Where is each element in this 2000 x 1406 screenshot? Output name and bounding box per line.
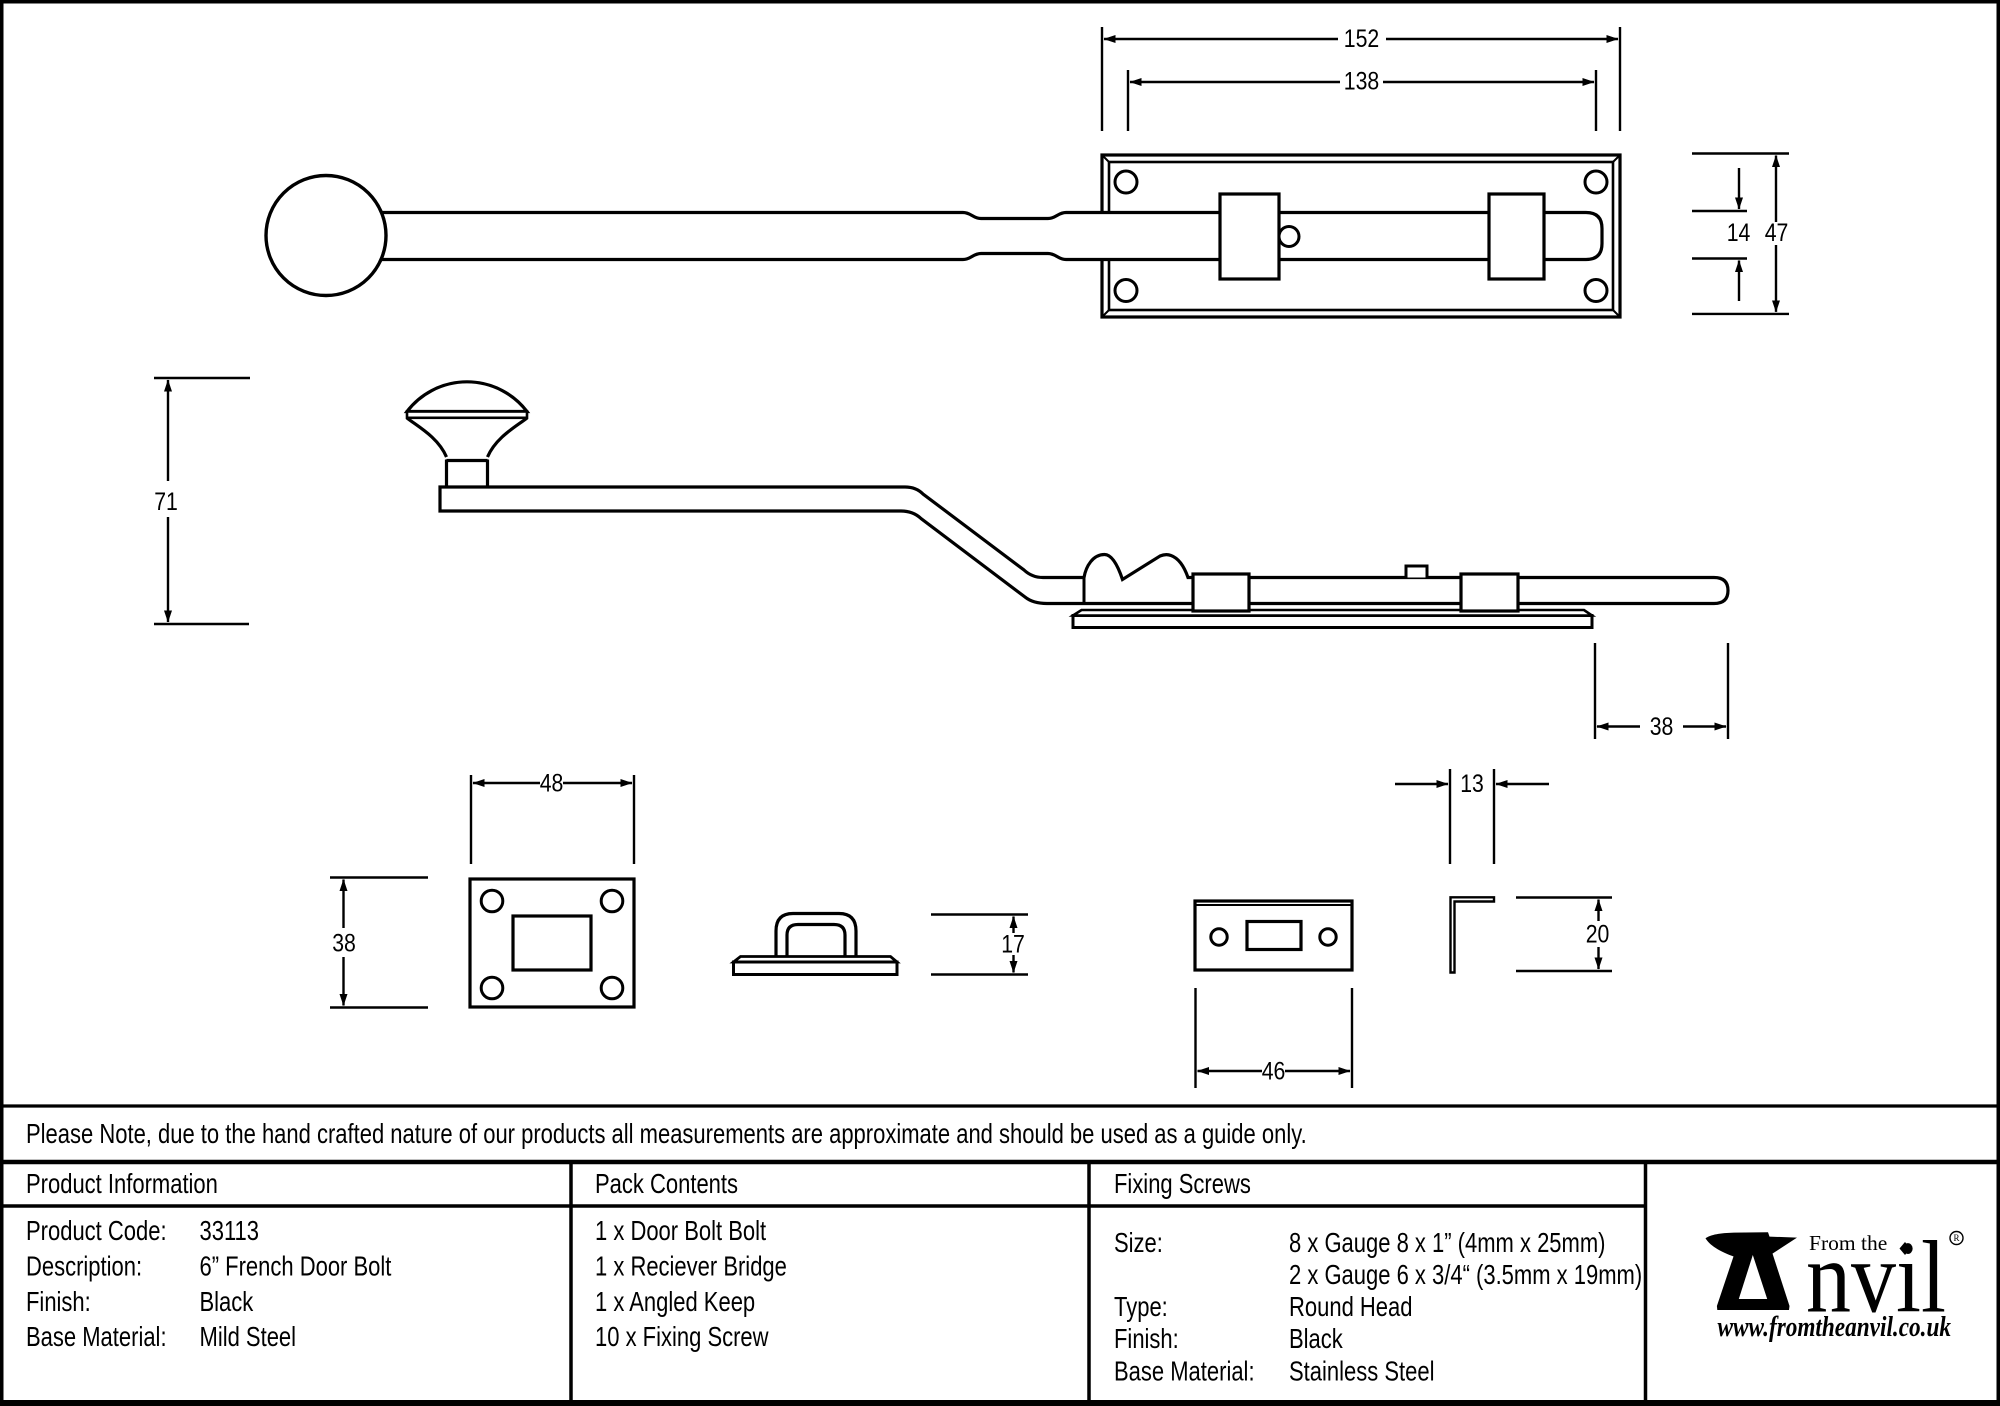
svg-text:Base Material:: Base Material: xyxy=(26,1322,167,1353)
svg-text:Stainless Steel: Stainless Steel xyxy=(1289,1356,1434,1387)
svg-text:6” French Door Bolt: 6” French Door Bolt xyxy=(200,1251,392,1282)
svg-text:Finish:: Finish: xyxy=(26,1287,91,1318)
svg-text:47: 47 xyxy=(1765,218,1789,246)
svg-text:2 x Gauge 6 x 3/4“ (3.5mm x 19: 2 x Gauge 6 x 3/4“ (3.5mm x 19mm) xyxy=(1289,1260,1642,1291)
svg-text:48: 48 xyxy=(540,769,564,797)
svg-text:38: 38 xyxy=(332,929,356,957)
svg-text:138: 138 xyxy=(1344,67,1379,95)
svg-text:14: 14 xyxy=(1727,218,1751,246)
svg-text:38: 38 xyxy=(1650,712,1674,740)
svg-text:20: 20 xyxy=(1586,920,1610,948)
svg-text:Product Information: Product Information xyxy=(26,1169,218,1200)
svg-text:Fixing Screws: Fixing Screws xyxy=(1114,1169,1251,1200)
svg-text:1 x Door Bolt Bolt: 1 x Door Bolt Bolt xyxy=(595,1216,766,1247)
svg-text:Type:: Type: xyxy=(1114,1292,1168,1323)
svg-text:1 x Reciever Bridge: 1 x Reciever Bridge xyxy=(595,1251,787,1282)
svg-text:1 x Angled Keep: 1 x Angled Keep xyxy=(595,1287,755,1318)
svg-text:Round Head: Round Head xyxy=(1289,1292,1412,1323)
svg-text:www.fromtheanvil.co.uk: www.fromtheanvil.co.uk xyxy=(1718,1312,1952,1343)
svg-text:R: R xyxy=(1953,1233,1959,1243)
svg-text:Please Note, due to the hand c: Please Note, due to the hand crafted nat… xyxy=(26,1119,1307,1150)
svg-text:Black: Black xyxy=(1289,1324,1343,1355)
svg-text:17: 17 xyxy=(1001,930,1025,958)
svg-text:Product Code:: Product Code: xyxy=(26,1216,167,1247)
svg-text:Description:: Description: xyxy=(26,1251,142,1282)
svg-text:Pack Contents: Pack Contents xyxy=(595,1169,738,1200)
svg-text:Base Material:: Base Material: xyxy=(1114,1356,1255,1387)
svg-text:10 x Fixing Screw: 10 x Fixing Screw xyxy=(595,1322,769,1353)
svg-text:152: 152 xyxy=(1344,24,1379,52)
svg-text:8 x Gauge 8 x 1” (4mm x 25mm): 8 x Gauge 8 x 1” (4mm x 25mm) xyxy=(1289,1228,1606,1259)
svg-text:Mild Steel: Mild Steel xyxy=(200,1322,297,1353)
svg-text:Black: Black xyxy=(200,1287,254,1318)
svg-text:Finish:: Finish: xyxy=(1114,1324,1179,1355)
svg-text:33113: 33113 xyxy=(200,1216,260,1247)
svg-text:From the: From the xyxy=(1809,1231,1887,1255)
svg-text:Size:: Size: xyxy=(1114,1228,1163,1259)
svg-text:13: 13 xyxy=(1460,769,1484,797)
svg-text:71: 71 xyxy=(154,487,178,515)
svg-text:46: 46 xyxy=(1262,1057,1286,1085)
